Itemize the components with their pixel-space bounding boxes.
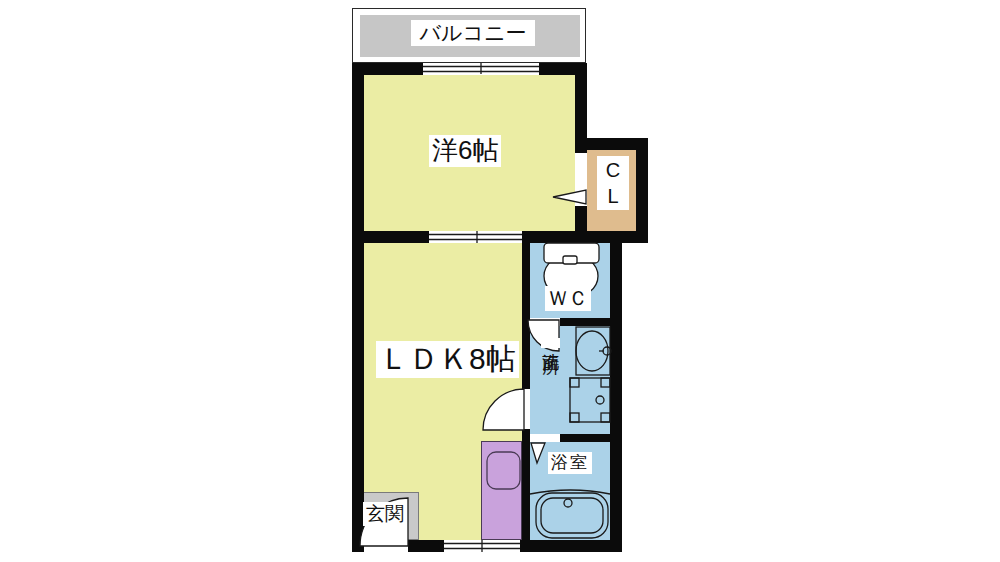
kitchen-counter <box>481 441 522 540</box>
wall-western-room-right-lower <box>575 206 587 232</box>
wall-room-divider-right <box>522 231 648 243</box>
closet-door-opening <box>575 153 587 206</box>
wall-room-divider-left <box>352 231 429 243</box>
closet-label-l: L <box>600 183 626 209</box>
wall-bottom-segment-2 <box>520 540 622 552</box>
wall-right-outer <box>610 232 622 552</box>
bathroom-label: 浴室 <box>548 452 592 474</box>
balcony-label: バルコニー <box>411 20 535 46</box>
balcony-window-opening <box>423 63 539 75</box>
wall-bottom-corner <box>352 540 364 552</box>
ldk-window-opening <box>444 540 520 552</box>
floor-plan: バルコニー 洋6帖 C L ＬＤＫ8帖 ＷＣ 洗面所 浴室 玄関 <box>0 0 1000 562</box>
wall-washroom-bathroom-divider <box>560 434 610 442</box>
entrance-label: 玄関 <box>363 502 407 526</box>
wall-closet-right <box>636 138 648 243</box>
wall-wc-washroom-divider <box>560 318 610 326</box>
closet-label-c: C <box>600 157 626 183</box>
wall-top-left <box>352 63 423 75</box>
wall-bottom-segment-1 <box>408 540 444 552</box>
wall-left <box>352 63 364 552</box>
wall-ldk-right-lower <box>522 429 530 552</box>
ldk-label: ＬＤＫ8帖 <box>376 341 519 378</box>
washroom-label: 洗面所 <box>541 338 560 348</box>
bathroom-door-opening <box>530 434 560 442</box>
wc-label: ＷＣ <box>545 286 591 311</box>
western-room-label: 洋6帖 <box>429 135 501 167</box>
room-divider-door-opening <box>429 231 522 243</box>
washroom-door-opening <box>522 389 530 429</box>
wc-door-opening <box>530 318 560 326</box>
wall-ldk-right-upper <box>522 243 530 389</box>
closet-label: C L <box>597 156 629 210</box>
